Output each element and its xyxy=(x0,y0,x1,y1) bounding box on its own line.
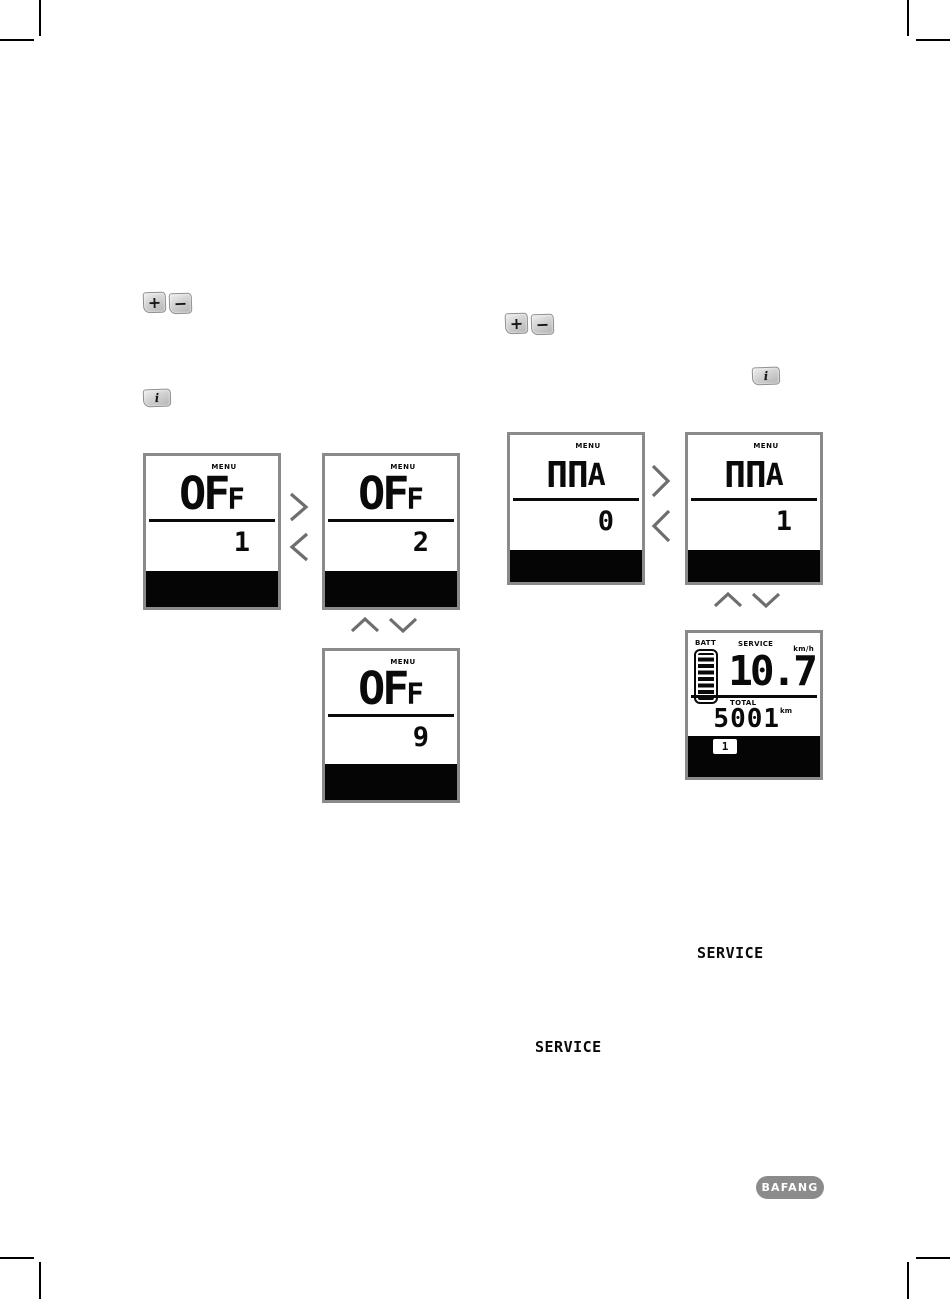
crop-mark xyxy=(39,1262,41,1299)
plus-label: + xyxy=(510,315,524,331)
lcd-divider xyxy=(513,498,639,501)
total-unit-label: km xyxy=(780,707,792,715)
lcd-sub-value: 9 xyxy=(325,724,429,751)
lcd-main-value: ΠΠA xyxy=(688,458,820,494)
lcd-divider xyxy=(691,498,817,501)
lcd-divider xyxy=(328,519,454,522)
lcd-panel-off-2: MENU OFF 2 xyxy=(322,453,460,610)
lcd-divider xyxy=(691,695,817,698)
lcd-main-value: OFF xyxy=(146,471,278,516)
chevron-left-icon xyxy=(650,508,672,544)
batt-label: BATT xyxy=(695,639,716,647)
lcd-suffix: F xyxy=(406,482,423,516)
lcd-panel-nna-0: MENU ΠΠA 0 xyxy=(507,432,645,585)
crop-mark xyxy=(39,0,41,36)
crop-mark xyxy=(0,39,34,41)
chevron-right-icon xyxy=(650,463,672,499)
info-label: i xyxy=(154,391,159,405)
plus-button-icon: + xyxy=(143,292,167,314)
total-value: 5001km xyxy=(688,706,792,732)
plus-label: + xyxy=(148,294,162,310)
lcd-bottom-bar: 1 xyxy=(688,736,820,777)
minus-label: − xyxy=(536,316,550,332)
chevron-right-icon xyxy=(288,491,310,523)
lcd-bottom-bar xyxy=(146,571,278,607)
minus-label: − xyxy=(174,295,188,311)
lcd-suffix: A xyxy=(766,458,784,493)
manual-page: + − i + − i MENU OFF 1 MENU OFF 2 MENU O… xyxy=(0,0,950,1299)
lcd-panel-off-9: MENU OFF 9 xyxy=(322,648,460,803)
lcd-panel-dashboard: BATT SERVICE km/h 10.7 TOTAL 5001km 1 xyxy=(685,630,823,780)
info-button-icon: i xyxy=(143,389,172,408)
lcd-suffix: F xyxy=(406,677,423,711)
lcd-big-digits: ΠΠ xyxy=(546,455,587,496)
lcd-big-digits: OF xyxy=(358,662,406,715)
chevron-up-icon xyxy=(712,591,744,609)
bafang-logo-text: BAFANG xyxy=(761,1181,818,1194)
lcd-panel-off-1: MENU OFF 1 xyxy=(143,453,281,610)
lcd-main-value: OFF xyxy=(325,666,457,711)
crop-mark xyxy=(0,1257,34,1259)
lcd-bottom-bar xyxy=(510,550,642,582)
chevron-down-icon xyxy=(387,616,419,634)
lcd-suffix: A xyxy=(588,458,606,493)
lcd-panel-nna-1: MENU ΠΠA 1 xyxy=(685,432,823,585)
chevron-down-icon xyxy=(750,591,782,609)
assist-level-badge: 1 xyxy=(713,739,737,754)
service-text: SERVICE xyxy=(535,1038,602,1056)
bafang-logo: BAFANG xyxy=(756,1176,824,1199)
speed-value: 10.7 xyxy=(728,651,815,692)
info-label: i xyxy=(763,369,768,383)
lcd-bottom-bar xyxy=(325,571,457,607)
lcd-divider xyxy=(328,714,454,717)
lcd-suffix: F xyxy=(227,482,244,516)
lcd-sub-value: 0 xyxy=(510,508,614,535)
menu-label: MENU xyxy=(522,442,654,450)
lcd-sub-value: 1 xyxy=(146,529,250,556)
crop-mark xyxy=(907,0,909,36)
total-digits: 5001 xyxy=(713,704,780,734)
lcd-main-value: ΠΠA xyxy=(510,458,642,494)
menu-label: MENU xyxy=(700,442,832,450)
lcd-big-digits: ΠΠ xyxy=(724,455,765,496)
lcd-sub-value: 1 xyxy=(688,508,792,535)
crop-mark xyxy=(916,1257,950,1259)
lcd-divider xyxy=(149,519,275,522)
minus-button-icon: − xyxy=(169,293,193,315)
crop-mark xyxy=(907,1262,909,1299)
service-text: SERVICE xyxy=(697,944,764,962)
crop-mark xyxy=(916,39,950,41)
lcd-bottom-bar xyxy=(688,550,820,582)
lcd-bottom-bar xyxy=(325,764,457,800)
chevron-left-icon xyxy=(288,531,310,563)
lcd-big-digits: OF xyxy=(358,467,406,520)
lcd-sub-value: 2 xyxy=(325,529,429,556)
lcd-main-value: OFF xyxy=(325,471,457,516)
chevron-up-icon xyxy=(349,616,381,634)
plus-button-icon: + xyxy=(505,313,529,335)
lcd-big-digits: OF xyxy=(179,467,227,520)
minus-button-icon: − xyxy=(531,314,555,336)
info-button-icon: i xyxy=(752,367,781,386)
